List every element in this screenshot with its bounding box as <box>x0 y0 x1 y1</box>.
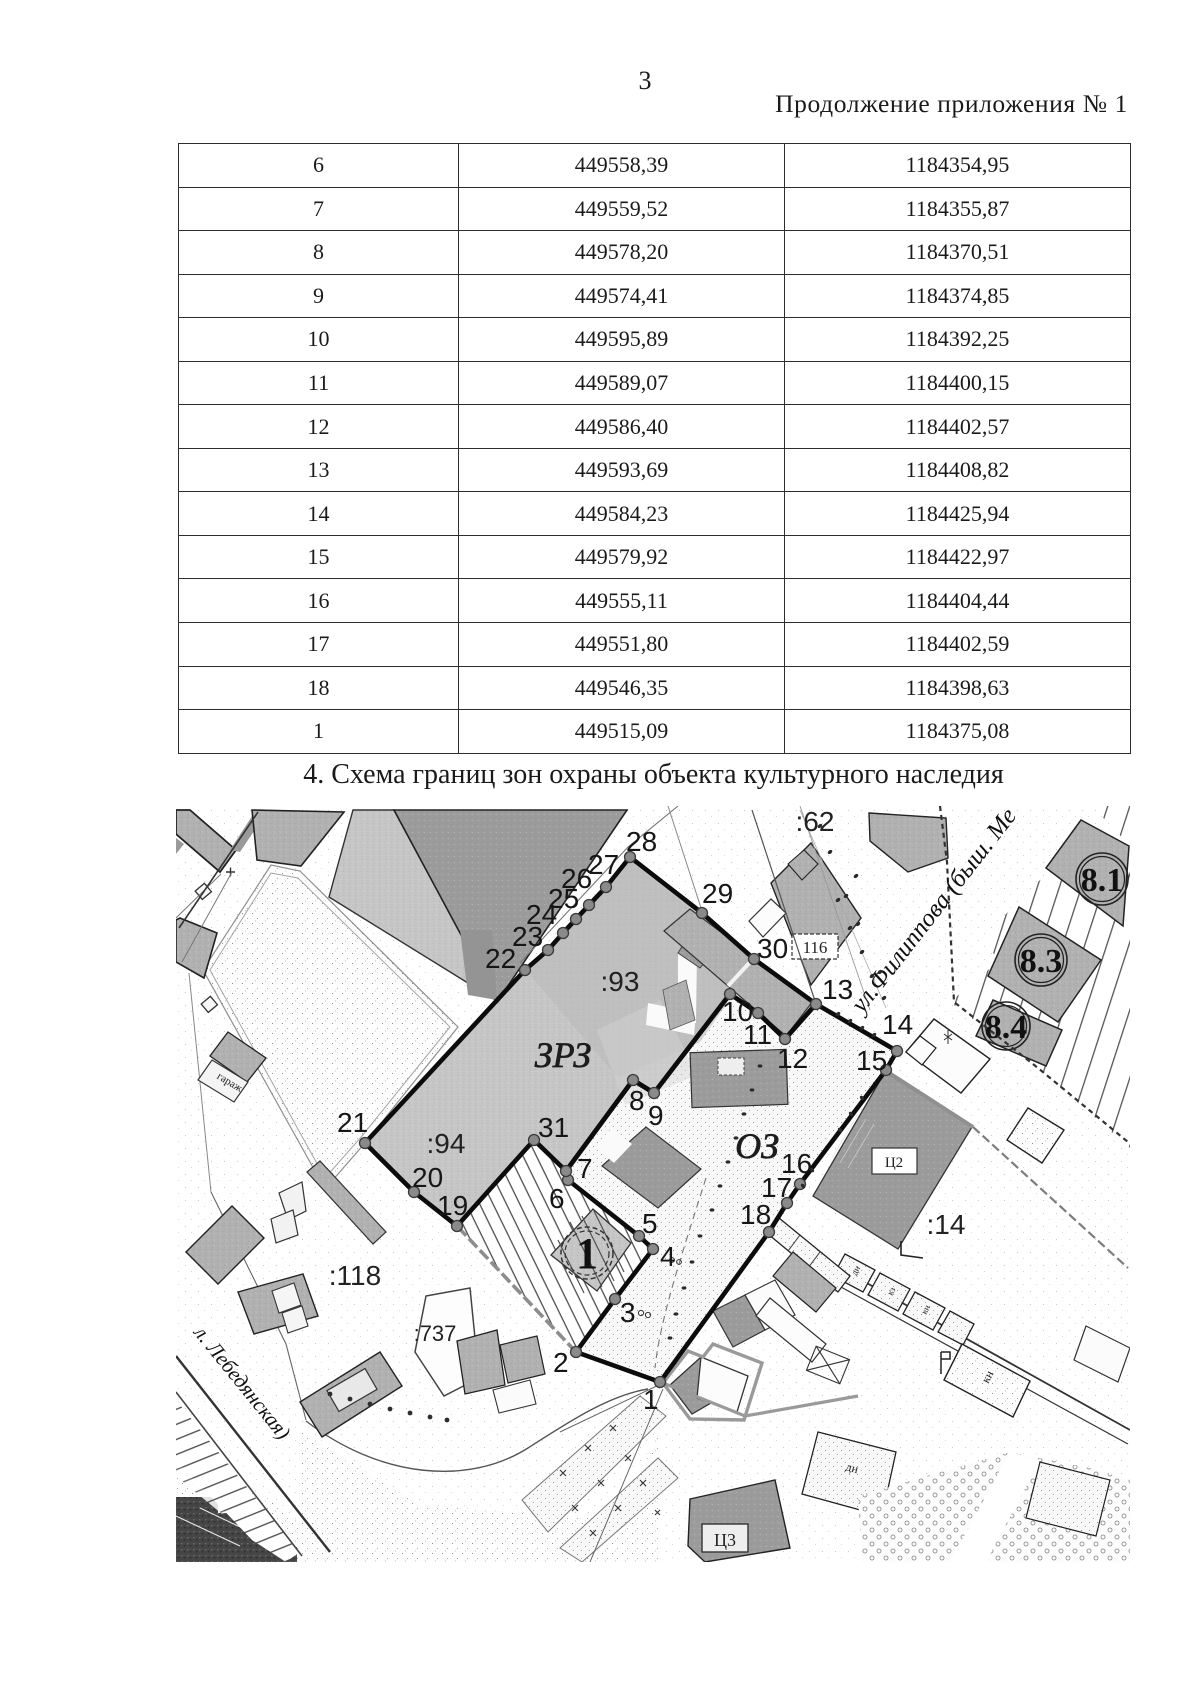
svg-text:4: 4 <box>660 1241 676 1272</box>
svg-text:19: 19 <box>437 1190 468 1221</box>
svg-text:27: 27 <box>588 849 619 880</box>
svg-text:1: 1 <box>576 1229 598 1278</box>
svg-text:ЗРЗ: ЗРЗ <box>535 1035 592 1075</box>
svg-text:Ц3: Ц3 <box>714 1530 736 1550</box>
svg-text:30: 30 <box>757 933 788 964</box>
svg-text:8: 8 <box>629 1085 645 1116</box>
svg-text:21: 21 <box>337 1107 368 1138</box>
svg-text:11: 11 <box>743 1019 772 1050</box>
svg-text::62: :62 <box>796 806 835 837</box>
svg-text:2: 2 <box>553 1347 569 1378</box>
svg-text:3: 3 <box>620 1297 636 1328</box>
svg-text:29: 29 <box>702 878 733 909</box>
svg-text:5: 5 <box>642 1208 658 1239</box>
svg-text:31: 31 <box>538 1112 569 1143</box>
svg-text:12: 12 <box>777 1043 808 1074</box>
svg-text:Ц2: Ц2 <box>885 1155 903 1171</box>
svg-text:8.3: 8.3 <box>1020 943 1063 980</box>
svg-text:8.1: 8.1 <box>1081 862 1124 899</box>
svg-text::14: :14 <box>927 1209 966 1240</box>
svg-text:20: 20 <box>412 1162 443 1193</box>
svg-text:14: 14 <box>882 1009 913 1040</box>
svg-text:7: 7 <box>577 1153 593 1184</box>
svg-text:1: 1 <box>643 1384 659 1415</box>
svg-text::737: :737 <box>414 1321 457 1346</box>
svg-text:8.4: 8.4 <box>985 1009 1028 1046</box>
svg-text:6: 6 <box>549 1183 565 1214</box>
svg-text:ОЗ: ОЗ <box>735 1126 779 1166</box>
svg-text:18: 18 <box>740 1199 771 1230</box>
svg-text::94: :94 <box>427 1128 466 1159</box>
svg-text:9: 9 <box>648 1100 664 1131</box>
svg-text:116: 116 <box>803 938 828 957</box>
svg-text:15: 15 <box>856 1045 887 1076</box>
svg-text::118: :118 <box>329 1260 381 1291</box>
svg-text::93: :93 <box>601 966 640 997</box>
svg-text:28: 28 <box>626 826 657 857</box>
